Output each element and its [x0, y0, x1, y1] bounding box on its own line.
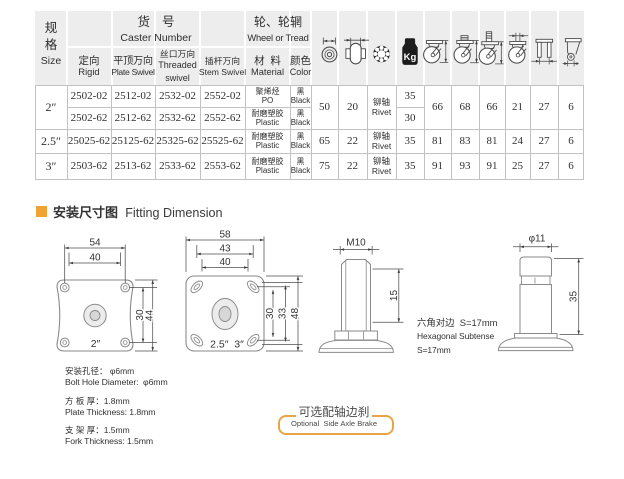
- svg-text:15: 15: [389, 290, 400, 302]
- svg-text:44: 44: [145, 310, 156, 322]
- svg-text:40: 40: [89, 253, 101, 264]
- svg-text:φ11: φ11: [529, 234, 546, 245]
- svg-text:48: 48: [290, 308, 301, 320]
- svg-text:Kg: Kg: [404, 52, 417, 63]
- svg-text:40: 40: [219, 257, 231, 268]
- svg-text:35: 35: [569, 291, 580, 303]
- svg-text:M10: M10: [346, 238, 366, 249]
- svg-text:43: 43: [219, 244, 231, 255]
- svg-text:33: 33: [278, 308, 289, 320]
- svg-text:2.5″ 3″: 2.5″ 3″: [210, 339, 244, 351]
- svg-text:54: 54: [89, 238, 101, 249]
- svg-text:30: 30: [265, 308, 276, 320]
- svg-text:2″: 2″: [91, 338, 101, 350]
- svg-text:58: 58: [219, 230, 231, 241]
